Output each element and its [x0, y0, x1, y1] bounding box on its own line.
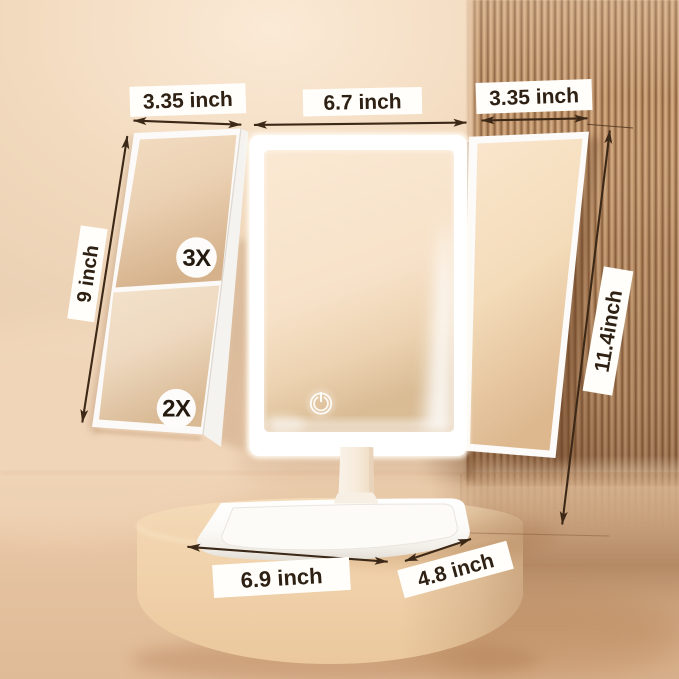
svg-text:6.9 inch: 6.9 inch	[240, 563, 323, 593]
svg-text:3.35 inch: 3.35 inch	[143, 88, 234, 114]
svg-text:6.7 inch: 6.7 inch	[323, 90, 402, 115]
svg-text:3X: 3X	[182, 245, 211, 272]
svg-text:3.35 inch: 3.35 inch	[489, 84, 580, 110]
svg-text:2X: 2X	[162, 396, 191, 423]
